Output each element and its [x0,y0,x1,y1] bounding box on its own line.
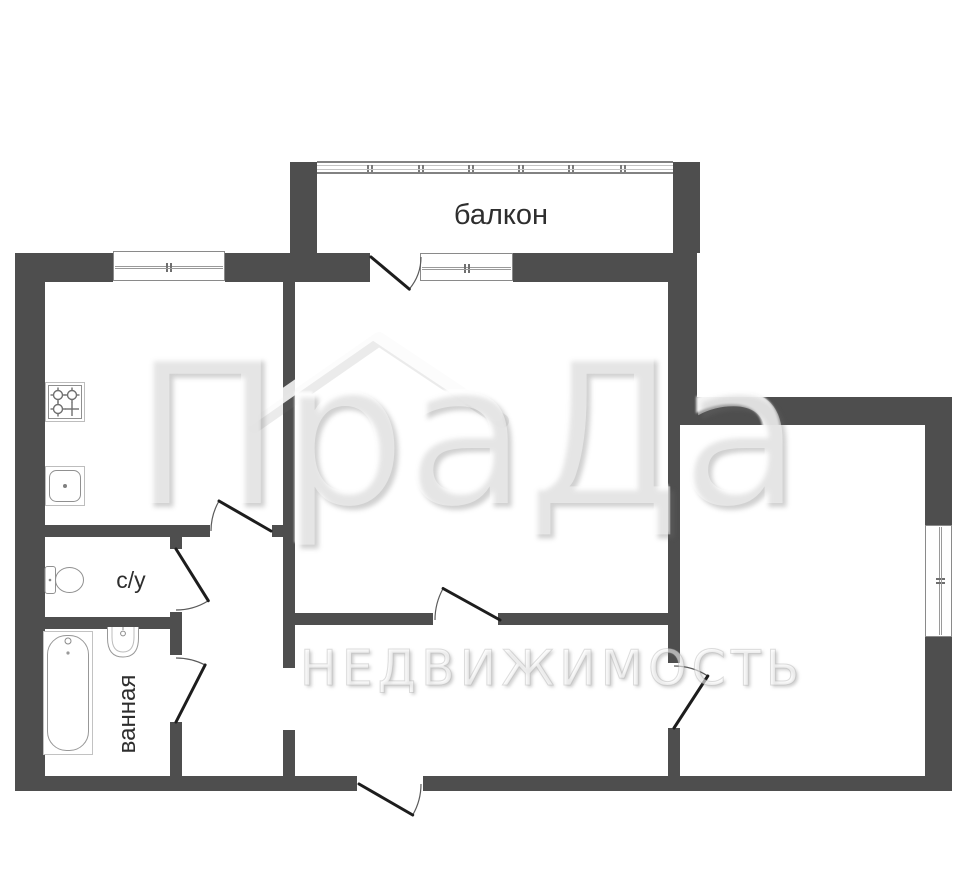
living-room-door-leaf [443,589,500,621]
bathroom-door-arc [176,658,205,665]
kitchen-door-arc [211,501,219,531]
entrance-door-arc [413,784,421,815]
toilet-door-arc [176,601,208,610]
bedroom-door-arc [674,666,708,676]
balcony-label: балкон [431,199,571,232]
doors-layer [0,0,960,880]
balcony-door-arc [409,257,421,289]
toilet-label: с/у [105,567,157,594]
toilet-door-leaf [176,549,208,601]
living-room-door-arc [435,589,443,621]
kitchen-door-leaf [219,501,271,531]
bathroom-door-leaf [176,665,205,722]
bedroom-door-leaf [674,676,708,728]
entrance-door-leaf [359,784,413,815]
floor-plan: балкон с/у ванная ПраДа НЕДВИЖИМОСТЬ [0,0,960,880]
balcony-door-leaf [371,257,409,289]
bathroom-label: ванная [114,674,142,754]
